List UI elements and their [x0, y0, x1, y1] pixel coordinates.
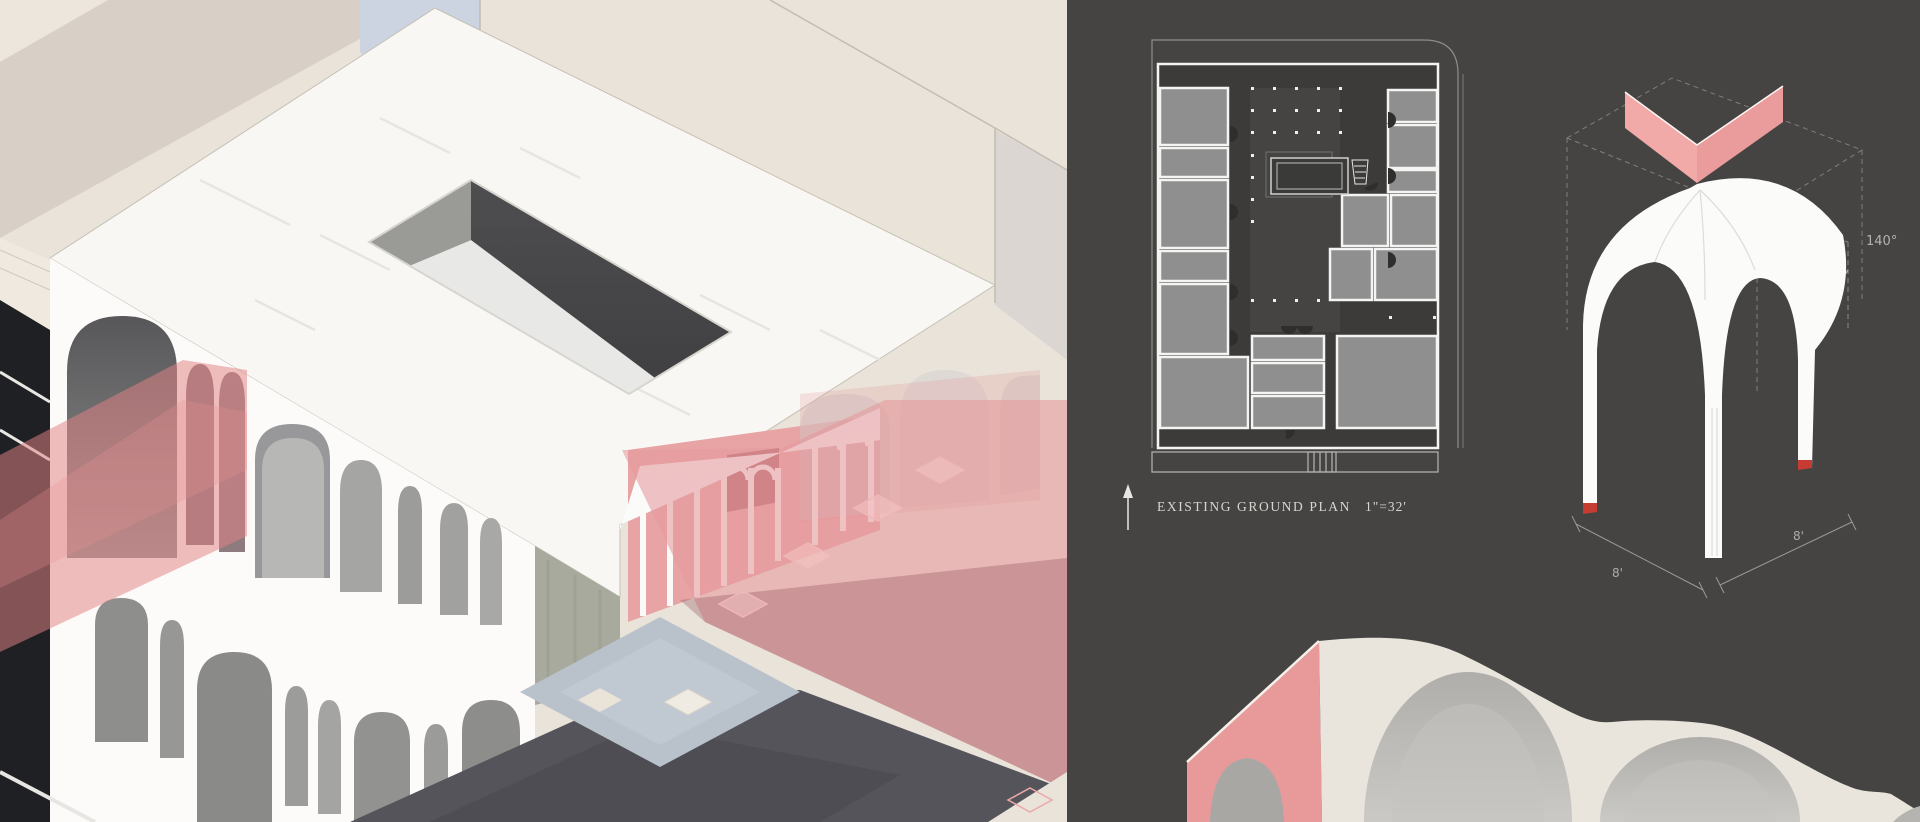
vault-dimension-label-left: 8'	[1612, 566, 1623, 580]
building-axonometric-render	[0, 0, 1067, 822]
arch-u3	[440, 503, 468, 615]
arch-medium-inner	[262, 438, 324, 578]
ground-plan-label: EXISTING GROUND PLAN	[1157, 499, 1351, 514]
arch-u2	[398, 486, 422, 604]
presentation-board: EXISTING GROUND PLAN1"=32' 140° 8' 8'	[0, 0, 1920, 822]
arch-l5	[318, 700, 341, 814]
vault-angle-label: 140°	[1866, 234, 1897, 249]
arch-l1	[95, 598, 148, 742]
arch-l2	[160, 620, 184, 758]
arch-u4	[480, 518, 502, 625]
courtyard-pool	[1266, 152, 1348, 197]
courtyard-area	[1250, 88, 1340, 332]
arch-u1	[340, 460, 382, 592]
arch-l3-large	[197, 652, 272, 822]
ground-plan-caption: EXISTING GROUND PLAN1"=32'	[1157, 499, 1407, 515]
vault-dimension-label-right: 8'	[1793, 529, 1804, 543]
arch-l4	[285, 686, 308, 806]
ground-plan-scale: 1"=32'	[1365, 499, 1407, 514]
dark-drawing-panel	[1067, 0, 1920, 822]
